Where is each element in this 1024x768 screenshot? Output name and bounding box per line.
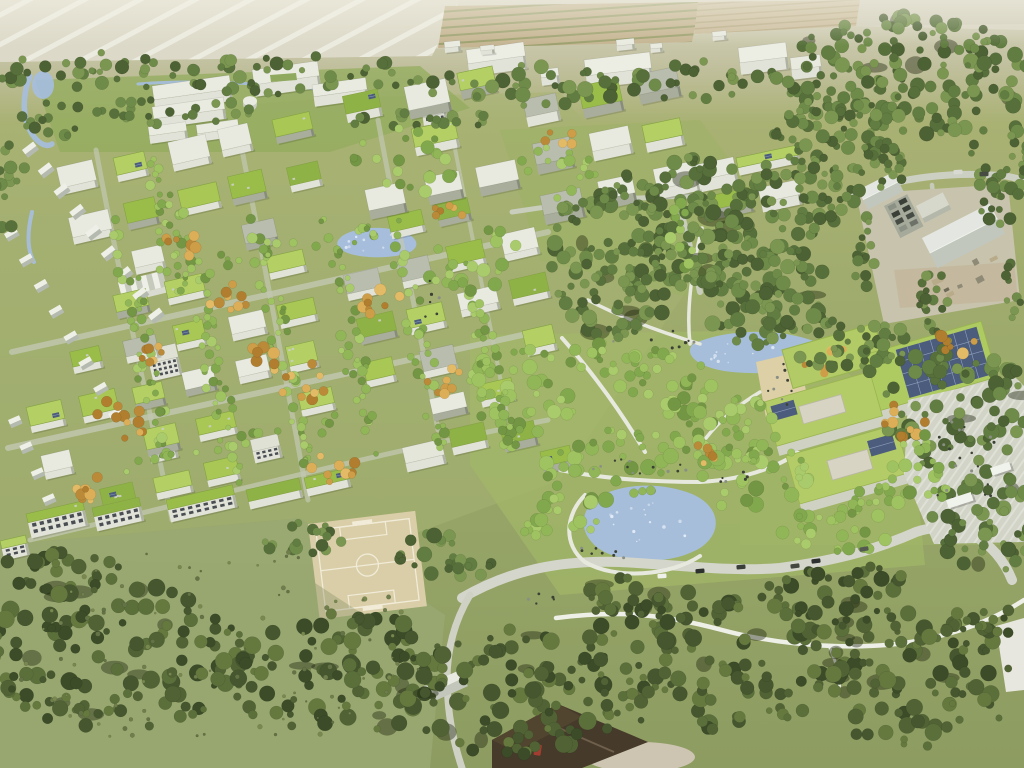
aerial-masterplan-rendering — [0, 0, 1024, 768]
car — [657, 573, 666, 578]
distance-haze — [0, 0, 1024, 46]
car — [953, 170, 962, 175]
car — [736, 564, 745, 569]
building — [738, 42, 791, 76]
building — [480, 44, 497, 56]
car — [695, 568, 704, 573]
car — [979, 172, 988, 177]
rendering-canvas — [0, 0, 1024, 768]
